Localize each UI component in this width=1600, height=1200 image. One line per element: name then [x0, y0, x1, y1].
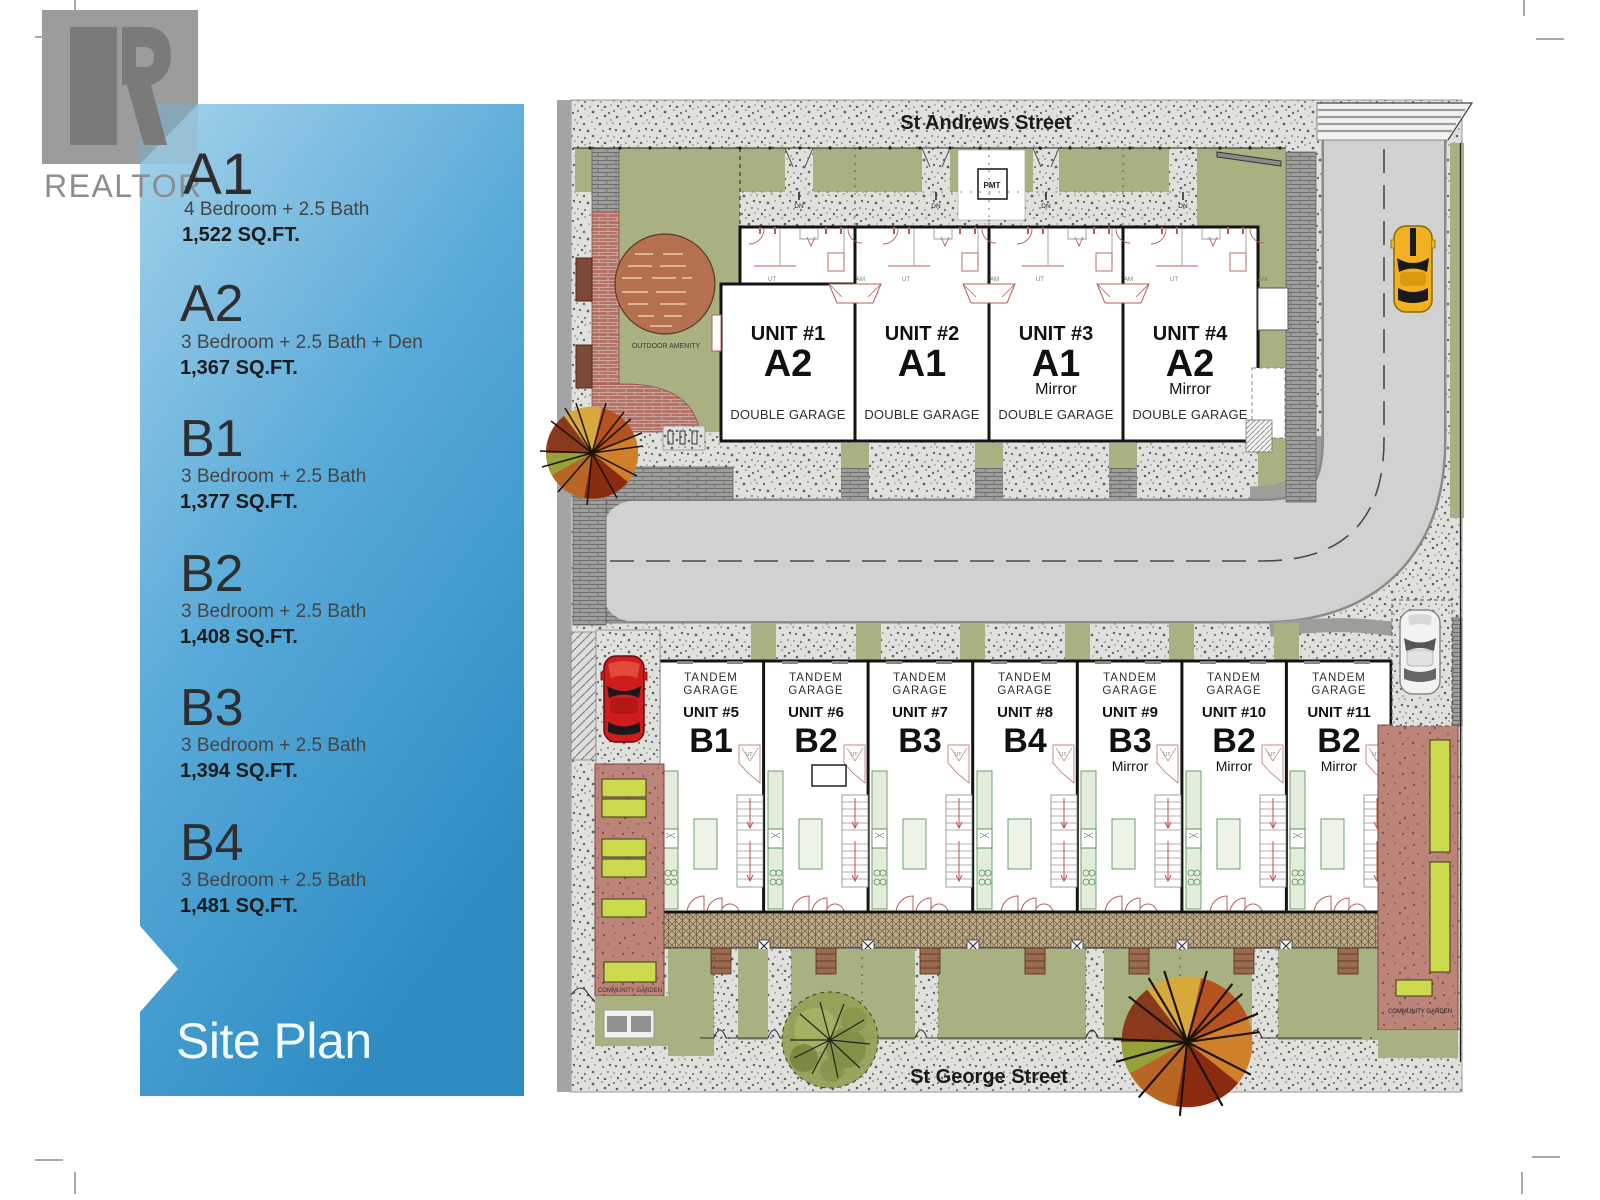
svg-text:GARAGE: GARAGE	[683, 685, 738, 697]
svg-text:1,394 SQ.FT.: 1,394 SQ.FT.	[180, 760, 298, 782]
svg-text:DOUBLE GARAGE: DOUBLE GARAGE	[1132, 407, 1247, 422]
svg-text:1,377 SQ.FT.: 1,377 SQ.FT.	[180, 491, 298, 513]
svg-text:A2: A2	[764, 343, 813, 385]
svg-text:GARAGE: GARAGE	[1311, 685, 1366, 697]
svg-text:GARAGE: GARAGE	[997, 685, 1052, 697]
svg-text:OUTDOOR AMENITY: OUTDOOR AMENITY	[632, 343, 701, 350]
svg-text:1,367 SQ.FT.: 1,367 SQ.FT.	[180, 357, 298, 379]
svg-text:A1: A1	[1032, 343, 1081, 385]
svg-text:A2: A2	[1166, 343, 1215, 385]
svg-text:TANDEM: TANDEM	[893, 672, 947, 684]
svg-text:DN: DN	[931, 203, 941, 210]
svg-text:Site Plan: Site Plan	[176, 1013, 372, 1069]
svg-text:PMT: PMT	[984, 181, 1001, 190]
svg-text:UNIT #6: UNIT #6	[788, 704, 844, 721]
svg-text:A1: A1	[183, 142, 254, 207]
svg-text:B3: B3	[180, 679, 244, 737]
svg-text:Mirror: Mirror	[1216, 758, 1253, 774]
svg-text:3 Bedroom + 2.5 Bath: 3 Bedroom + 2.5 Bath	[181, 870, 366, 891]
svg-text:TANDEM: TANDEM	[1312, 672, 1366, 684]
svg-text:B2: B2	[1212, 722, 1255, 760]
svg-text:UNIT #4: UNIT #4	[1153, 323, 1228, 345]
svg-text:DOUBLE GARAGE: DOUBLE GARAGE	[998, 407, 1113, 422]
svg-text:TANDEM: TANDEM	[789, 672, 843, 684]
svg-text:DN: DN	[794, 203, 804, 210]
svg-text:1,481 SQ.FT.: 1,481 SQ.FT.	[180, 895, 298, 917]
svg-text:St Andrews Street: St Andrews Street	[900, 112, 1072, 134]
svg-text:DN: DN	[1041, 203, 1051, 210]
svg-text:DN: DN	[1178, 203, 1188, 210]
svg-text:B1: B1	[689, 722, 732, 760]
svg-text:GARAGE: GARAGE	[1102, 685, 1157, 697]
svg-text:St George Street: St George Street	[910, 1066, 1068, 1088]
svg-text:TANDEM: TANDEM	[1103, 672, 1157, 684]
svg-text:B2: B2	[180, 545, 244, 603]
svg-text:GARAGE: GARAGE	[1206, 685, 1261, 697]
svg-text:UNIT #3: UNIT #3	[1019, 323, 1093, 345]
svg-text:1,522 SQ.FT.: 1,522 SQ.FT.	[182, 224, 300, 246]
svg-text:REALTOR: REALTOR	[44, 168, 203, 204]
svg-text:A2: A2	[180, 275, 244, 333]
svg-text:UNIT #5: UNIT #5	[683, 704, 739, 721]
svg-text:TANDEM: TANDEM	[998, 672, 1052, 684]
svg-text:Mirror: Mirror	[1321, 758, 1358, 774]
svg-text:UNIT #10: UNIT #10	[1202, 704, 1266, 721]
svg-text:Mirror: Mirror	[1035, 381, 1077, 398]
svg-text:B3: B3	[1108, 722, 1151, 760]
svg-text:B4: B4	[1003, 722, 1047, 760]
svg-text:3 Bedroom + 2.5 Bath + Den: 3 Bedroom + 2.5 Bath + Den	[181, 332, 423, 353]
svg-text:3 Bedroom + 2.5 Bath: 3 Bedroom + 2.5 Bath	[181, 466, 366, 487]
svg-text:TANDEM: TANDEM	[684, 672, 738, 684]
svg-text:A1: A1	[898, 343, 947, 385]
svg-text:B1: B1	[180, 410, 244, 468]
svg-text:UNIT #9: UNIT #9	[1102, 704, 1158, 721]
svg-text:UNIT #7: UNIT #7	[892, 704, 948, 721]
svg-text:UNIT #2: UNIT #2	[885, 323, 959, 345]
svg-text:Mirror: Mirror	[1112, 758, 1149, 774]
svg-text:B3: B3	[898, 722, 941, 760]
svg-text:B2: B2	[794, 722, 837, 760]
svg-text:COMMUNITY GARDEN: COMMUNITY GARDEN	[598, 988, 662, 994]
svg-text:B4: B4	[180, 814, 244, 872]
svg-text:TANDEM: TANDEM	[1207, 672, 1261, 684]
svg-text:3 Bedroom + 2.5 Bath: 3 Bedroom + 2.5 Bath	[181, 601, 366, 622]
svg-text:Mirror: Mirror	[1169, 381, 1211, 398]
svg-text:GARAGE: GARAGE	[892, 685, 947, 697]
svg-text:3 Bedroom + 2.5 Bath: 3 Bedroom + 2.5 Bath	[181, 735, 366, 756]
svg-text:1,408 SQ.FT.: 1,408 SQ.FT.	[180, 626, 298, 648]
svg-text:4 Bedroom + 2.5 Bath: 4 Bedroom + 2.5 Bath	[184, 199, 369, 220]
svg-text:COMMUNITY GARDEN: COMMUNITY GARDEN	[1388, 1009, 1452, 1015]
svg-text:UNIT #8: UNIT #8	[997, 704, 1053, 721]
svg-text:GARAGE: GARAGE	[788, 685, 843, 697]
svg-text:UNIT #1: UNIT #1	[751, 323, 825, 345]
svg-text:DOUBLE GARAGE: DOUBLE GARAGE	[730, 407, 845, 422]
svg-text:DOUBLE GARAGE: DOUBLE GARAGE	[864, 407, 979, 422]
svg-text:UNIT #11: UNIT #11	[1307, 704, 1370, 721]
svg-text:B2: B2	[1317, 722, 1360, 760]
